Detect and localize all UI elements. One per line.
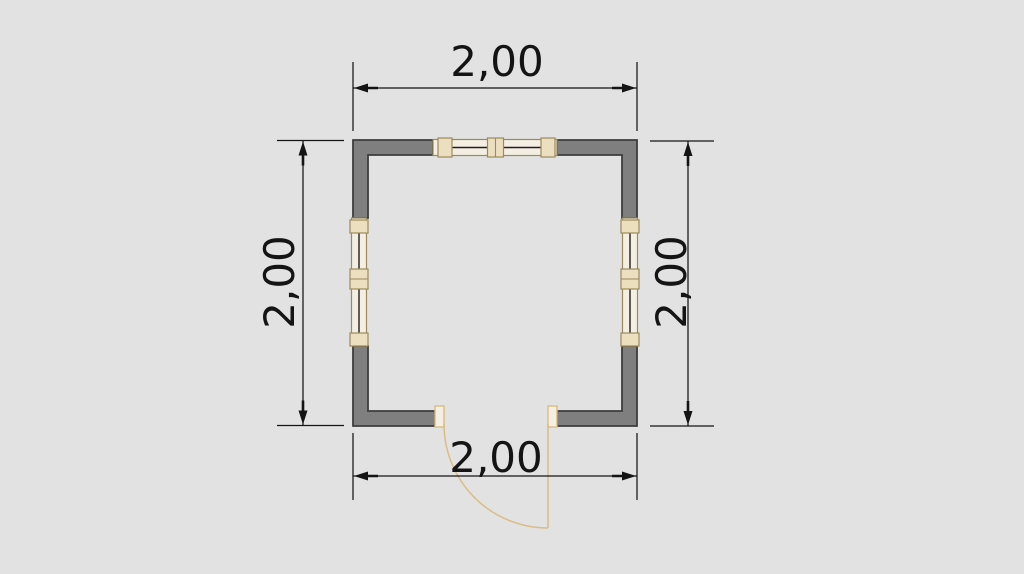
floor-plan-drawing: 2,00 2,00 2,00 2,00 xyxy=(0,0,1024,574)
dimension-arrow-down xyxy=(299,401,308,425)
floor-plan-canvas: 2,00 2,00 2,00 2,00 xyxy=(0,0,1024,574)
window-mullion xyxy=(438,138,452,157)
walls xyxy=(353,140,637,426)
wall-segment-top-left xyxy=(353,140,433,218)
window-mullion xyxy=(621,333,639,346)
window-mullion xyxy=(541,138,555,157)
window-mullion xyxy=(350,220,368,233)
dimension-arrow-right xyxy=(612,472,636,481)
dimension-arrow-left xyxy=(354,472,378,481)
dimension-label-top: 2,00 xyxy=(450,37,544,86)
wall-segment-top-right xyxy=(557,140,637,218)
window-right xyxy=(621,218,639,346)
dimension-label-right: 2,00 xyxy=(647,235,696,329)
dimension-label-bottom: 2,00 xyxy=(449,433,543,482)
dimension-arrow-right xyxy=(612,84,636,93)
wall-segment-bottom-left xyxy=(353,346,435,426)
dimension-left: 2,00 xyxy=(255,141,344,426)
door-jamb-left xyxy=(435,406,444,427)
dimension-bottom: 2,00 xyxy=(353,433,637,500)
dimension-arrow-up xyxy=(684,142,693,166)
dimension-label-left: 2,00 xyxy=(255,235,304,329)
window-left xyxy=(350,218,368,346)
wall-segment-bottom-right xyxy=(557,346,637,426)
dimension-arrow-left xyxy=(354,84,378,93)
window-mullion xyxy=(350,333,368,346)
dimension-arrow-down xyxy=(684,401,693,425)
dimension-arrow-up xyxy=(299,142,308,166)
dimension-top: 2,00 xyxy=(353,37,637,131)
door-jamb-right xyxy=(548,406,557,427)
window-top xyxy=(433,138,557,157)
window-mullion xyxy=(621,220,639,233)
dimension-right: 2,00 xyxy=(647,141,714,426)
